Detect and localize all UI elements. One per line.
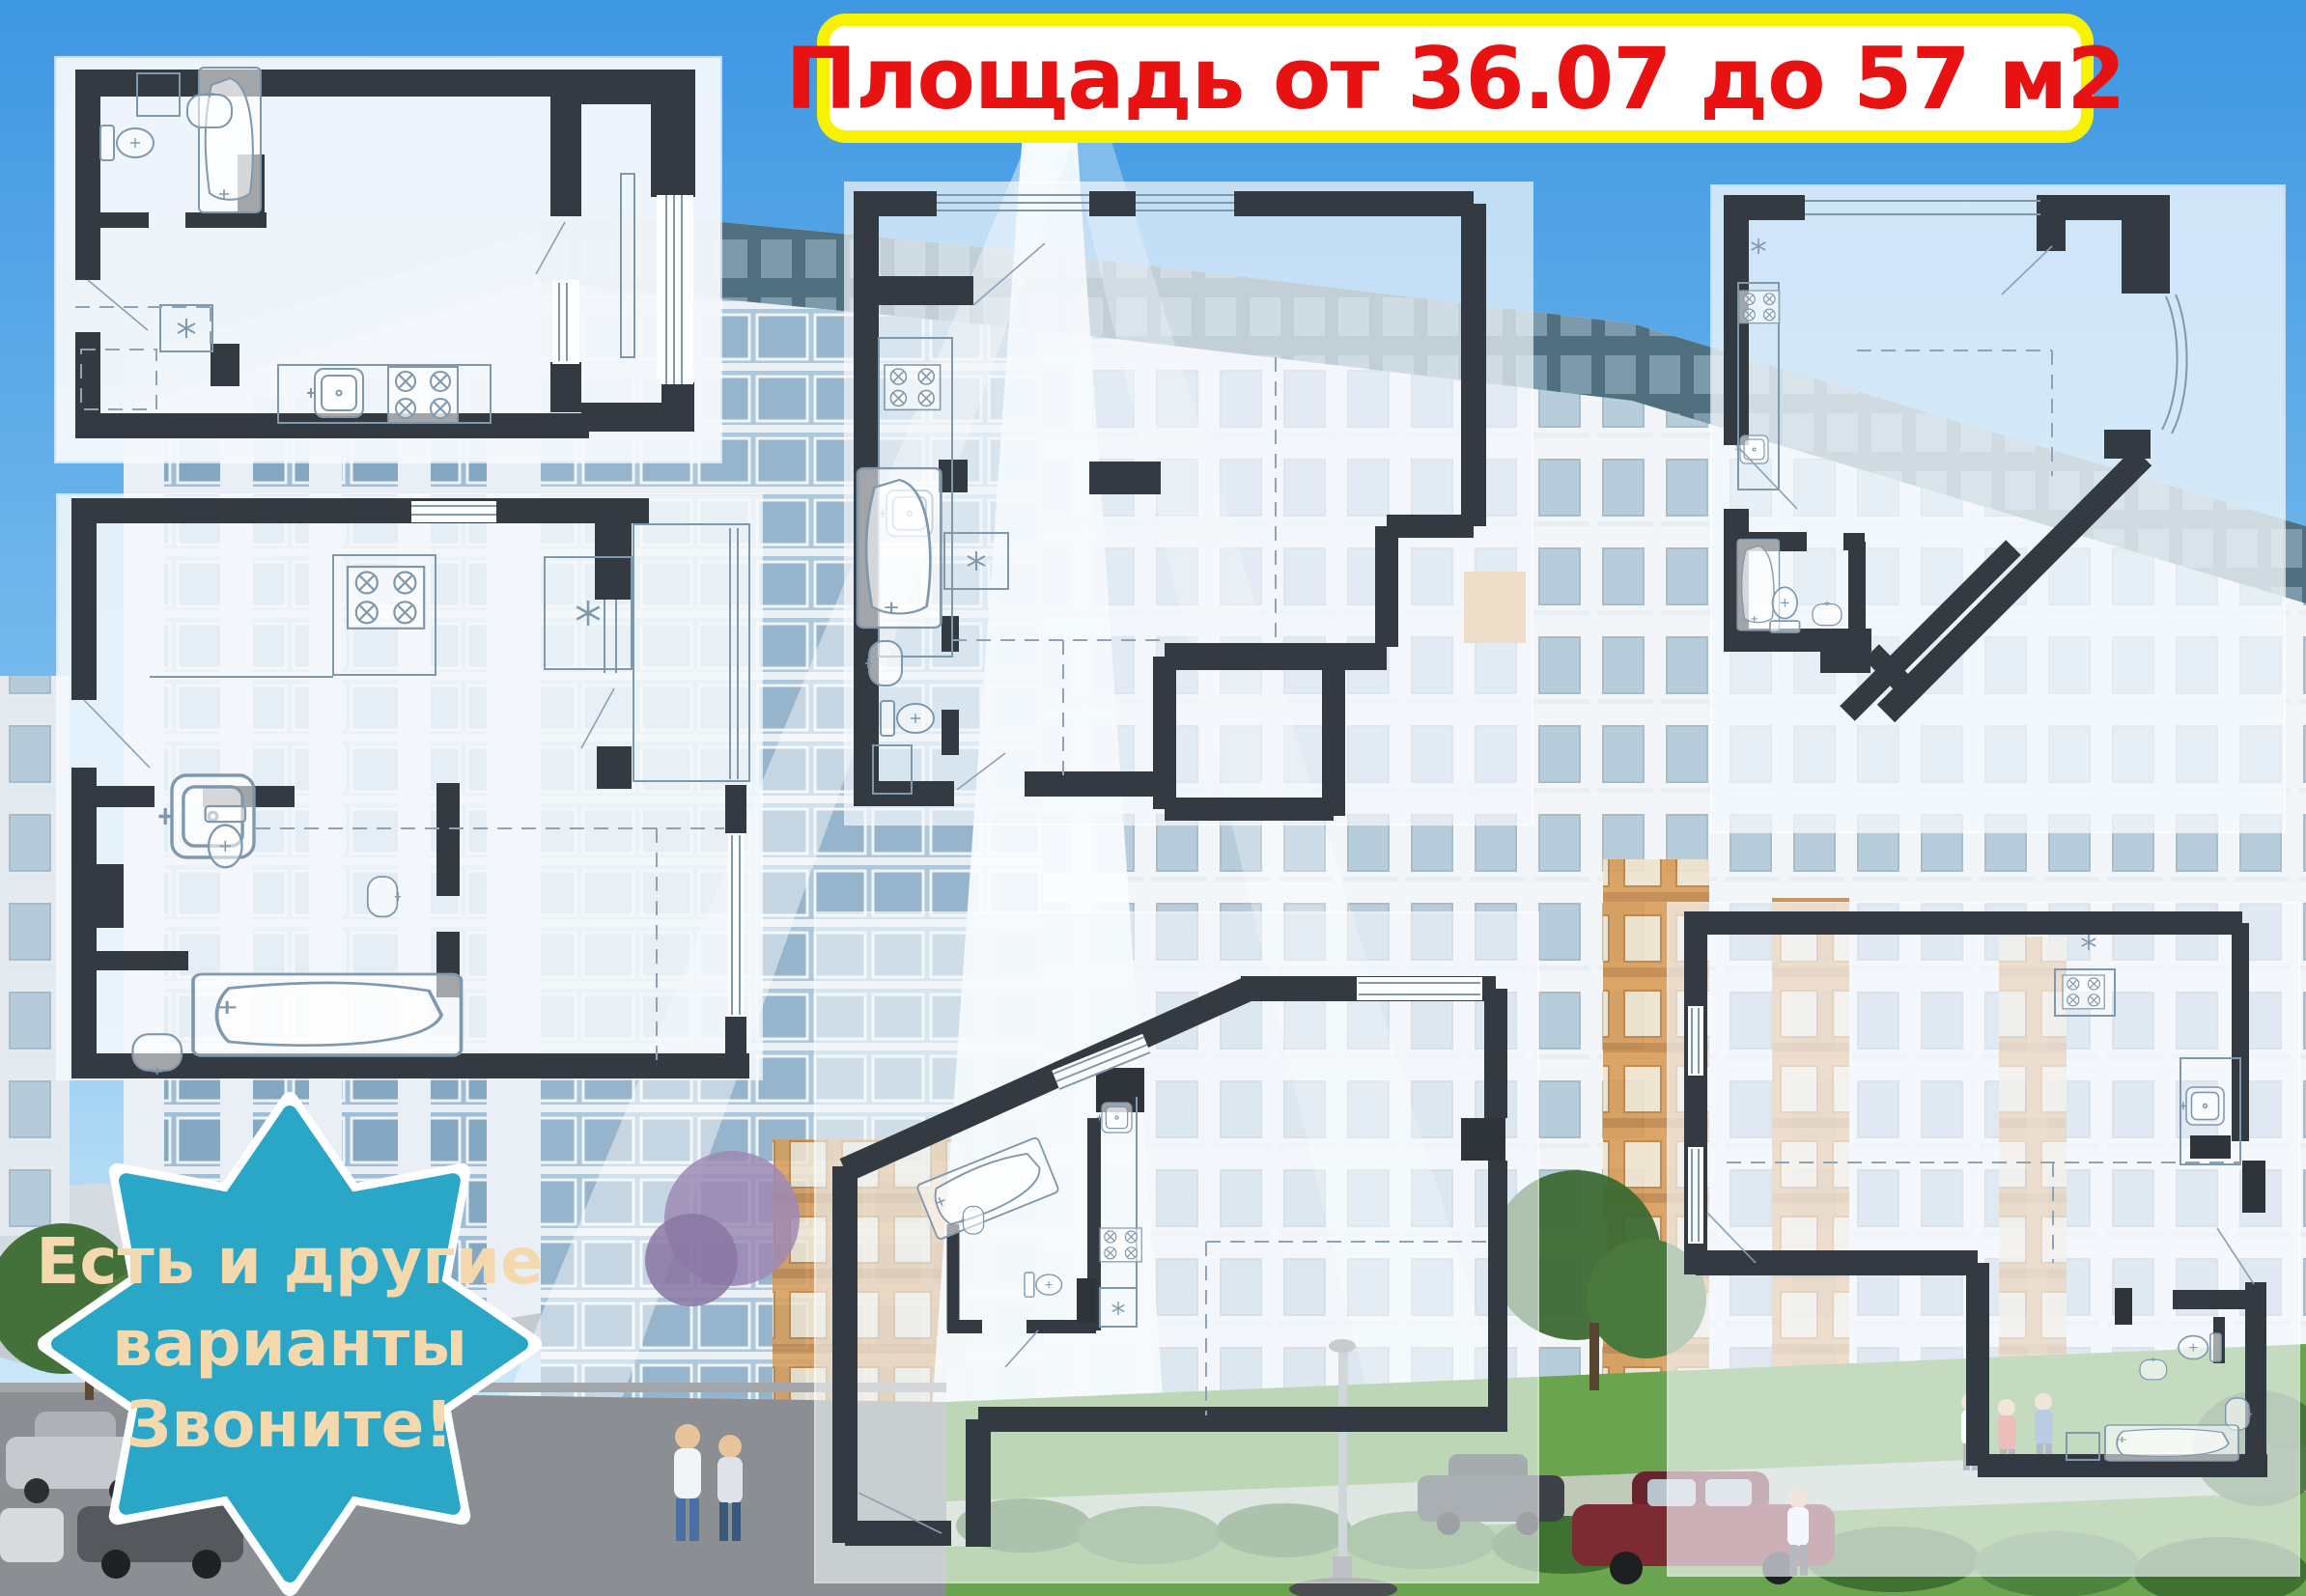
- floorplan-drawing-6: [1669, 904, 2298, 1575]
- sink-icon: [865, 641, 902, 686]
- vent-icon: [1752, 238, 1765, 254]
- toilet-icon: [881, 701, 934, 736]
- toilet-icon: [100, 126, 154, 160]
- badge-line-3: Звоните!: [127, 1385, 454, 1466]
- floorplan-drawing-5: [816, 913, 1537, 1582]
- bathtub-icon: [916, 1136, 1059, 1240]
- floorplan-panel-2: [58, 495, 761, 1078]
- vent-icon: [178, 319, 195, 338]
- floorplan-panel-5: [816, 913, 1537, 1582]
- sink-icon: [2140, 1358, 2167, 1380]
- window-glazing: [411, 501, 749, 1017]
- bathtub-icon: [2105, 1425, 2238, 1461]
- flyer-canvas: Площадь от 36.07 до 57 м2 Есть и другие …: [0, 0, 2306, 1596]
- star-badge-text: Есть и другие варианты Звоните!: [19, 1074, 560, 1596]
- stove-icon: [388, 367, 458, 423]
- stove-icon: [1100, 1228, 1141, 1262]
- toilet-icon: [1770, 587, 1800, 632]
- vent-icon: [576, 601, 599, 626]
- floorplan-panel-3: [846, 183, 1532, 824]
- vent-icon: [1112, 1302, 1125, 1315]
- vent-icon: [2082, 935, 2095, 950]
- bathtub-icon: [199, 68, 261, 212]
- sink-icon: [1813, 602, 1842, 626]
- toilet-icon: [1025, 1273, 1062, 1297]
- kitchen-sink-icon: [307, 369, 363, 417]
- sink-icon: [368, 877, 401, 916]
- sink-icon: [961, 1206, 984, 1234]
- stove-icon: [885, 365, 941, 409]
- bathtub-icon: [1737, 540, 1780, 631]
- sink-icon: [187, 91, 232, 127]
- title-banner: Площадь от 36.07 до 57 м2: [817, 14, 2094, 143]
- window-glazing: [937, 195, 1234, 210]
- floorplan-panel-1: [56, 58, 720, 462]
- badge-line-2: варианты: [112, 1303, 467, 1385]
- vent-icon: [968, 551, 985, 571]
- floorplan-drawing-4: [1712, 186, 2284, 831]
- stove-icon: [2063, 975, 2104, 1009]
- kitchen-sink-icon: [2180, 1087, 2224, 1125]
- floorplan-drawing-1: [56, 58, 720, 462]
- floorplan-panel-6: [1669, 904, 2298, 1575]
- badge-line-1: Есть и другие: [36, 1221, 543, 1302]
- toilet-icon: [2179, 1333, 2221, 1361]
- title-text: Площадь от 36.07 до 57 м2: [785, 29, 2124, 128]
- bathtub-icon: [858, 468, 941, 628]
- sink-icon: [132, 1034, 182, 1075]
- floorplan-drawing-2: [58, 495, 761, 1078]
- floorplan-drawing-3: [846, 183, 1532, 824]
- floorplan-panel-4: [1712, 186, 2284, 831]
- kitchen-sink-icon: [1097, 1103, 1132, 1133]
- toilet-icon: [206, 806, 245, 867]
- bathtub-icon: [193, 974, 462, 1055]
- stove-icon: [348, 567, 424, 629]
- stove-icon: [1739, 291, 1780, 323]
